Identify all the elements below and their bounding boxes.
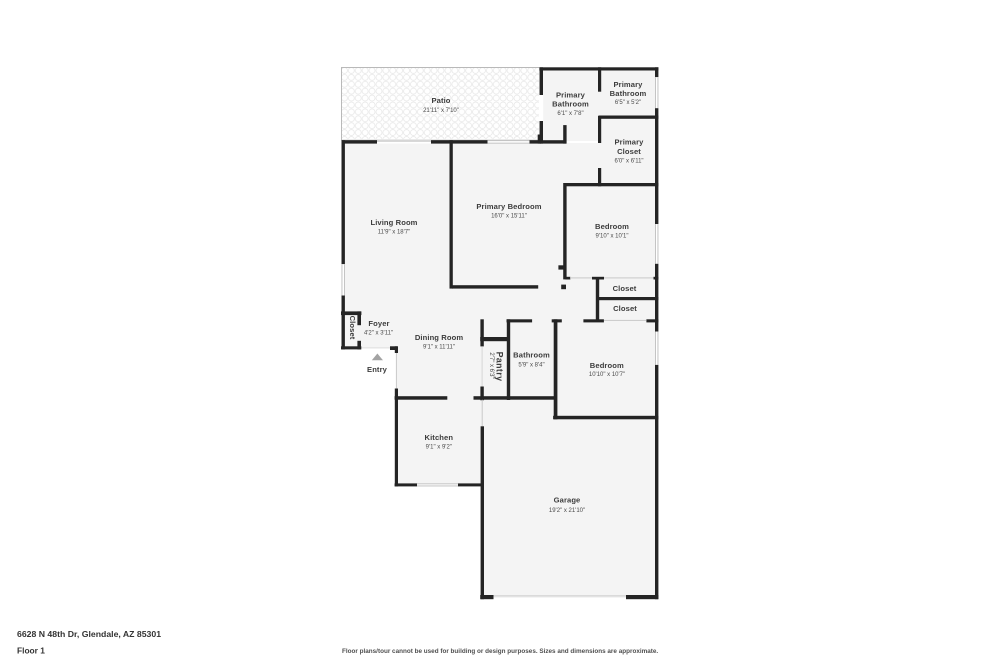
svg-text:6628 N 48th Dr, Glendale, AZ 8: 6628 N 48th Dr, Glendale, AZ 85301 (17, 629, 161, 639)
svg-text:Bedroom: Bedroom (595, 222, 629, 231)
svg-text:9'1" x 11'11": 9'1" x 11'11" (423, 345, 455, 351)
svg-text:Closet: Closet (617, 147, 641, 156)
svg-text:Floor plans/tour cannot be use: Floor plans/tour cannot be used for buil… (342, 648, 658, 655)
svg-text:Primary: Primary (614, 80, 644, 89)
svg-text:Patio: Patio (431, 96, 450, 105)
svg-text:Kitchen: Kitchen (425, 433, 454, 442)
svg-text:Floor 1: Floor 1 (17, 646, 45, 656)
svg-text:Primary: Primary (556, 91, 586, 100)
svg-text:6'1" x 7'8": 6'1" x 7'8" (557, 111, 583, 117)
svg-text:9'1" x 9'2": 9'1" x 9'2" (426, 445, 452, 451)
svg-text:Primary Bedroom: Primary Bedroom (476, 202, 541, 211)
svg-text:4'2" x 3'11": 4'2" x 3'11" (364, 330, 393, 336)
svg-text:Bathroom: Bathroom (610, 89, 647, 98)
svg-text:2'7" x 6'3": 2'7" x 6'3" (488, 352, 494, 378)
svg-text:Garage: Garage (554, 496, 581, 505)
svg-text:16'0" x 15'11": 16'0" x 15'11" (491, 214, 527, 220)
svg-text:19'2" x 21'10": 19'2" x 21'10" (549, 508, 585, 514)
svg-text:10'10" x 10'7": 10'10" x 10'7" (589, 372, 625, 378)
svg-text:Primary: Primary (615, 138, 645, 147)
svg-text:Closet: Closet (613, 304, 637, 313)
svg-text:Dining Room: Dining Room (415, 333, 463, 342)
svg-text:Bedroom: Bedroom (590, 361, 624, 370)
svg-text:9'10" x 10'1": 9'10" x 10'1" (596, 234, 629, 240)
svg-text:Closet: Closet (613, 284, 637, 293)
svg-text:Entry: Entry (367, 365, 388, 374)
svg-text:Bathroom: Bathroom (552, 100, 589, 109)
svg-text:Bathroom: Bathroom (513, 351, 550, 360)
svg-text:Pantry: Pantry (495, 352, 505, 382)
svg-text:21'11" x 7'10": 21'11" x 7'10" (423, 108, 459, 114)
svg-text:5'9" x 8'4": 5'9" x 8'4" (518, 363, 544, 369)
svg-text:6'5" x 5'2": 6'5" x 5'2" (615, 100, 641, 106)
svg-text:Closet: Closet (348, 316, 357, 340)
svg-text:Living Room: Living Room (370, 218, 417, 227)
svg-text:Foyer: Foyer (368, 319, 389, 328)
svg-text:11'9" x 18'7": 11'9" x 18'7" (378, 230, 410, 236)
svg-text:6'0" x 6'11": 6'0" x 6'11" (614, 159, 643, 165)
